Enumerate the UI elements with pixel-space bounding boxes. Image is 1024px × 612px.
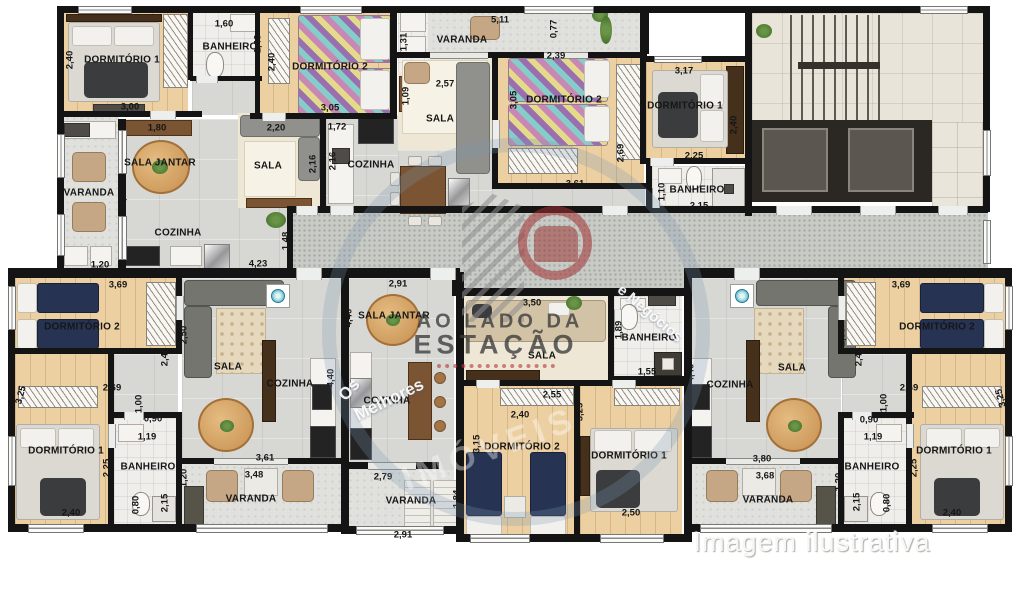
door-opening [476,380,500,388]
wall [255,6,260,115]
door-opening [150,111,176,119]
cooktop [310,426,336,458]
window [1005,286,1013,330]
window [932,524,988,533]
room-label: COZINHA [155,228,202,239]
door-opening [176,296,184,320]
dimension-label: 1,60 [215,19,234,30]
door-opening [612,380,636,388]
counter [658,168,682,184]
room-label: DORMITÓRIO 1 [916,446,992,457]
chair [390,192,400,206]
bed [466,452,502,516]
door-opening [602,206,628,215]
armchair [404,62,430,84]
door-opening [262,113,286,121]
bed-pillow [17,319,37,349]
dimension-label: 0,80 [131,496,142,515]
dimension-label: 3,68 [756,471,775,482]
door-opening [938,206,968,215]
bed-pillow [360,18,390,60]
plant [566,296,582,310]
dimension-label: 2,57 [436,79,455,90]
door-opening [330,206,354,215]
window [8,286,16,330]
dimension-label: 1,55 [638,367,657,378]
dimension-label: 0,80 [882,494,893,513]
room-label: SALA [214,362,242,373]
window [470,534,530,543]
window [920,6,968,14]
blanket [658,92,698,138]
dimension-label: 3,15 [472,435,483,454]
floor-checker [932,122,985,212]
wardrobe [922,386,1002,408]
dimension-label: 0,90 [860,415,879,426]
dimension-label: 4,40 [686,364,697,383]
window [600,534,664,543]
stool [434,396,446,408]
cooktop [312,384,332,410]
bed-pillow [72,26,112,46]
wall [745,6,752,216]
bed-pillow [530,516,566,536]
room-label: SALA [254,161,282,172]
room-label: SALA [778,363,806,374]
dimension-label: 2,15 [852,493,863,512]
dimension-label: 1,46 [253,35,264,54]
wardrobe [846,282,876,346]
wall [838,412,844,530]
room-label: VARANDA [226,494,277,505]
blanket [472,304,492,318]
dimension-label: 2,15 [160,494,171,513]
wardrobe [163,14,188,88]
blanket [84,62,148,98]
dimension-label: 2,40 [729,116,740,135]
window [8,436,16,486]
bed-pillow [984,319,1004,349]
counter [230,14,258,32]
window [196,524,328,533]
dimension-label: 2,69 [900,383,919,394]
room-label: DORMITÓRIO 1 [28,446,104,457]
counter [400,12,426,32]
dimension-label: 1,19 [864,432,883,443]
bed-pillow [700,110,724,142]
room-label: DORMITÓRIO 2 [899,322,975,333]
dimension-label: 1,31 [399,33,410,52]
room-label: COZINHA [707,380,754,391]
stool [434,420,446,432]
dimension-label: 2,16 [308,155,319,174]
armchair [72,152,106,182]
elevator-car [848,128,914,192]
dimension-label: 1,00 [134,395,145,414]
chair [390,172,400,186]
dimension-label: 2,40 [160,348,171,367]
dimension-label: 0,77 [549,20,560,39]
chair [408,156,422,166]
room-label: VARANDA [743,495,794,506]
dimension-label: 3,17 [675,66,694,77]
dimension-label: 2,50 [622,508,641,519]
wall [188,6,193,80]
dimension-label: 2,69 [103,383,122,394]
bed-pillow [634,430,672,452]
room-label: BANHEIRO [203,42,258,53]
window [524,6,594,14]
dimension-label: 3,25 [575,403,586,422]
dimension-label: 3,00 [121,102,140,113]
dimension-label: 3,50 [523,298,542,309]
sliding-door [214,458,288,465]
side-table [504,496,526,518]
wardrobe [18,386,98,408]
dimension-label: 2,55 [543,390,562,401]
appliance [724,184,734,194]
washer-drum [735,289,749,303]
wall [320,113,326,213]
cooktop [358,118,394,144]
dimension-label: 3,48 [245,470,264,481]
chair [408,216,422,226]
dimension-label: 1,10 [657,183,668,202]
bed-pillow [584,60,610,98]
wall [8,348,180,354]
dimension-label: 2,25 [909,459,920,478]
bed-pillow [584,106,610,142]
dimension-label: 3,61 [256,453,275,464]
dimension-label: 3,69 [109,280,128,291]
door-opening [776,206,812,215]
room-label: BANHEIRO [121,462,176,473]
dimension-label: 2,25 [102,459,113,478]
door-opening [296,268,322,280]
dimension-label: 1,09 [401,87,412,106]
room-label: DORMITÓRIO 2 [484,442,560,453]
door-opening [838,296,846,320]
wall [844,348,1012,354]
dimension-label: 3,69 [892,280,911,291]
bed-pillow [594,430,632,452]
dimension-label: 2,50 [837,328,848,347]
appliance [64,123,90,137]
dimension-label: 1,20 [179,469,190,488]
dimension-label: 2,25 [685,151,704,162]
room-label: SALA [528,351,556,362]
bed [920,283,984,313]
floor-tile [192,78,262,115]
dimension-label: 2,15 [690,201,709,212]
dimension-label: 2,16 [328,152,339,171]
sliding-door [368,462,416,470]
blanket [596,470,640,508]
room-label: SALA JANTAR [358,311,430,322]
room-label: VARANDA [437,35,488,46]
dimension-label: 2,79 [374,472,393,483]
window [300,6,362,14]
door-opening [650,158,674,166]
wardrobe [146,282,176,346]
toilet [206,52,224,78]
door-opening [734,268,760,280]
bed-pillow [360,70,390,110]
chair [428,156,442,166]
stool [434,372,446,384]
cooktop [350,428,372,460]
wall [684,272,692,538]
storage-box [184,486,204,526]
bed-pillow [17,283,37,313]
window [28,524,84,533]
room-label: COZINHA [267,379,314,390]
door-opening [108,424,116,448]
door-opening [492,120,500,148]
room-label: DORMITÓRIO 2 [292,62,368,73]
cabinet [580,436,590,496]
window [983,130,991,176]
dimension-label: 1,48 [281,232,292,251]
dimension-label: 3,80 [753,454,772,465]
dimension-label: 3,05 [321,103,340,114]
dimension-label: 4,40 [326,369,337,388]
door-opening [296,206,318,215]
wall [8,268,460,278]
room-label: DORMITÓRIO 2 [526,95,602,106]
room-label: DORMITÓRIO 1 [84,55,160,66]
refrigerator [204,244,230,270]
bed-pillow [984,283,1004,313]
wardrobe [614,388,680,406]
dimension-label: 2,40 [511,410,530,421]
dimension-label: 3,64 [118,188,129,207]
dimension-label: 1,20 [834,473,845,492]
wall [640,6,646,164]
wardrobe [508,148,578,174]
chair [428,216,442,226]
dimension-label: 3,61 [566,179,585,190]
refrigerator [448,178,470,206]
armchair [72,202,106,232]
counter [170,246,202,266]
dimension-label: 2,40 [854,348,865,367]
cabinet [66,14,162,22]
storage-box [816,486,836,526]
plant [788,420,802,432]
dimension-label: 1,89 [614,321,625,340]
wardrobe [268,18,290,84]
plant [600,16,612,44]
window [118,216,127,260]
side-table [662,358,674,370]
window [1005,436,1013,486]
dimension-label: 1,19 [138,432,157,443]
bed [530,452,566,516]
dimension-label: 2,91 [389,279,408,290]
plant [220,420,234,432]
dimension-label: 1,20 [91,260,110,271]
room-label: DORMITÓRIO 1 [591,451,667,462]
sliding-door [430,52,488,59]
room-label: BANHEIRO [845,462,900,473]
dimension-label: 2,40 [943,508,962,519]
door-opening [196,76,218,83]
armchair [282,470,314,502]
plant [266,212,286,228]
dimension-label: 2,39 [547,51,566,62]
counter [64,246,88,266]
dimension-label: 0,90 [144,414,163,425]
dimension-label: 2,91 [394,530,413,541]
door-opening [860,206,896,215]
dimension-label: 2,40 [62,508,81,519]
elevator-car [762,128,828,192]
room-label: BANHEIRO [622,333,677,344]
dimension-label: 1,00 [879,394,890,413]
cabinet [726,66,744,154]
door-opening [906,424,914,448]
dimension-label: 2,69 [616,144,627,163]
dimension-label: 2,40 [267,53,278,72]
room-label: DORMITÓRIO 1 [647,101,723,112]
plant [756,24,772,38]
room-label: SALA [426,114,454,125]
door-opening [430,268,456,280]
staircase-rail [798,62,880,69]
cabinet [408,362,432,440]
dimension-label: 1,72 [328,122,347,133]
bed-pillow [466,516,502,536]
dimension-label: 2,40 [65,51,76,70]
bed [37,283,99,313]
room-label: VARANDA [386,496,437,507]
floor-plan: AO LADO DA ESTAÇÃO Os Melhores e Negócio… [0,0,1024,612]
dimension-label: 5,11 [491,15,509,26]
dimension-label: 1,84 [452,490,463,509]
dimension-label: 1,80 [148,123,167,134]
window [57,134,65,178]
dimension-label: 2,50 [179,326,190,345]
wardrobe [500,388,574,406]
wall [452,288,692,296]
illustrative-note: Imagem ilustrativa [692,527,932,558]
sofa [456,62,490,174]
window [78,6,132,14]
washer-drum [271,289,285,303]
dimension-label: 3,05 [509,91,520,110]
room-label: COZINHA [348,160,395,171]
dimension-label: 2,20 [267,123,286,134]
dimension-label: 4,23 [249,259,268,270]
window [654,56,702,63]
window [57,214,65,256]
floor-corridor [287,213,988,272]
dimension-label: 4,40 [344,309,355,328]
room-label: COZINHA [364,396,411,407]
room-label: DORMITÓRIO 2 [44,322,120,333]
room-label: VARANDA [64,188,115,199]
armchair [706,470,738,502]
room-label: SALA JANTAR [124,158,196,169]
bed-pillow [114,26,154,46]
wall [390,6,397,115]
room-label: BANHEIRO [670,185,725,196]
window [983,220,991,264]
wall [983,6,990,212]
